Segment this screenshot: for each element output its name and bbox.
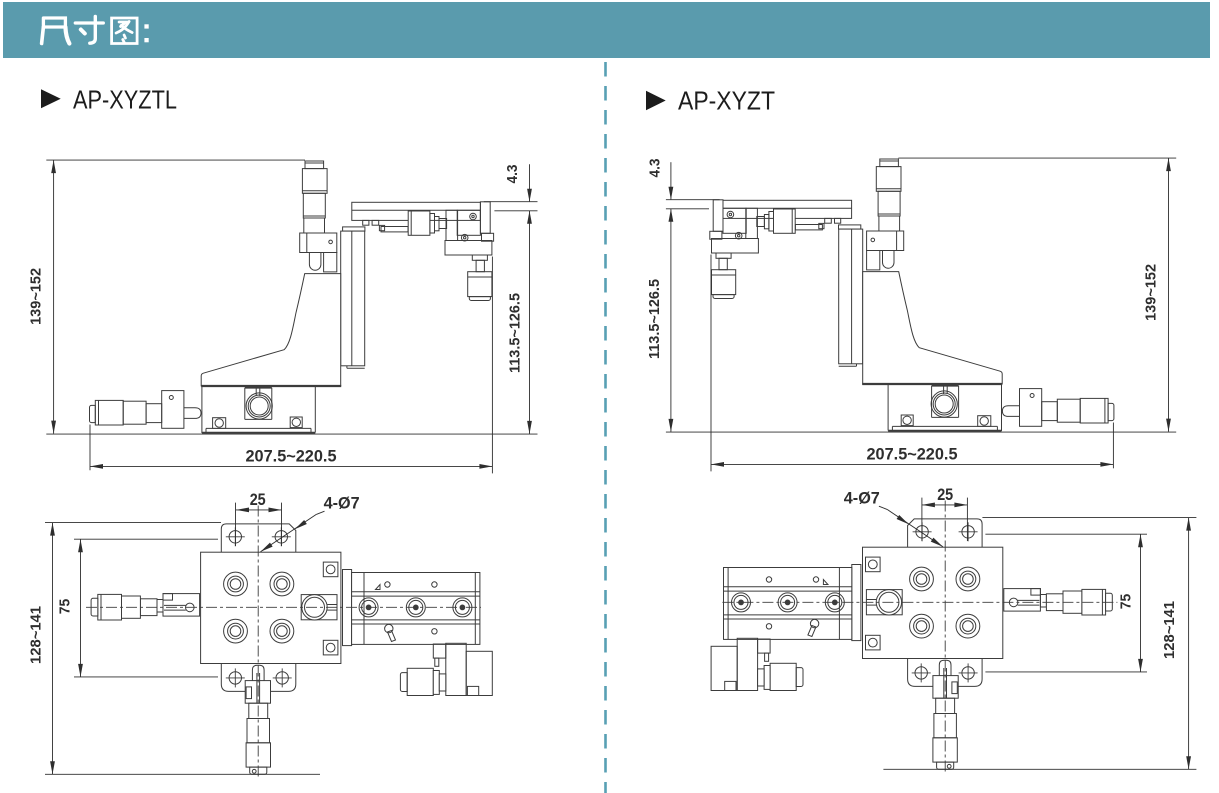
svg-text:75: 75: [57, 599, 73, 615]
svg-text:128~141: 128~141: [1162, 601, 1178, 659]
svg-text:4-Ø7: 4-Ø7: [844, 489, 880, 508]
svg-text:4-Ø7: 4-Ø7: [324, 494, 360, 513]
svg-text:139~152: 139~152: [29, 268, 45, 325]
svg-text:75: 75: [1118, 594, 1134, 610]
svg-text:128~141: 128~141: [29, 606, 45, 664]
svg-text:139~152: 139~152: [1144, 264, 1160, 321]
svg-text:113.5~126.5: 113.5~126.5: [647, 279, 663, 359]
svg-text:4.3: 4.3: [648, 159, 664, 178]
svg-text:4.3: 4.3: [505, 165, 521, 184]
svg-text:207.5~220.5: 207.5~220.5: [246, 447, 337, 466]
svg-text:113.5~126.5: 113.5~126.5: [508, 293, 524, 373]
svg-text:AP-XYZTL: AP-XYZTL: [73, 85, 177, 115]
svg-text:207.5~220.5: 207.5~220.5: [867, 445, 958, 464]
svg-text:25: 25: [250, 490, 266, 509]
svg-text:AP-XYZT: AP-XYZT: [678, 86, 775, 116]
svg-text:25: 25: [937, 485, 953, 504]
